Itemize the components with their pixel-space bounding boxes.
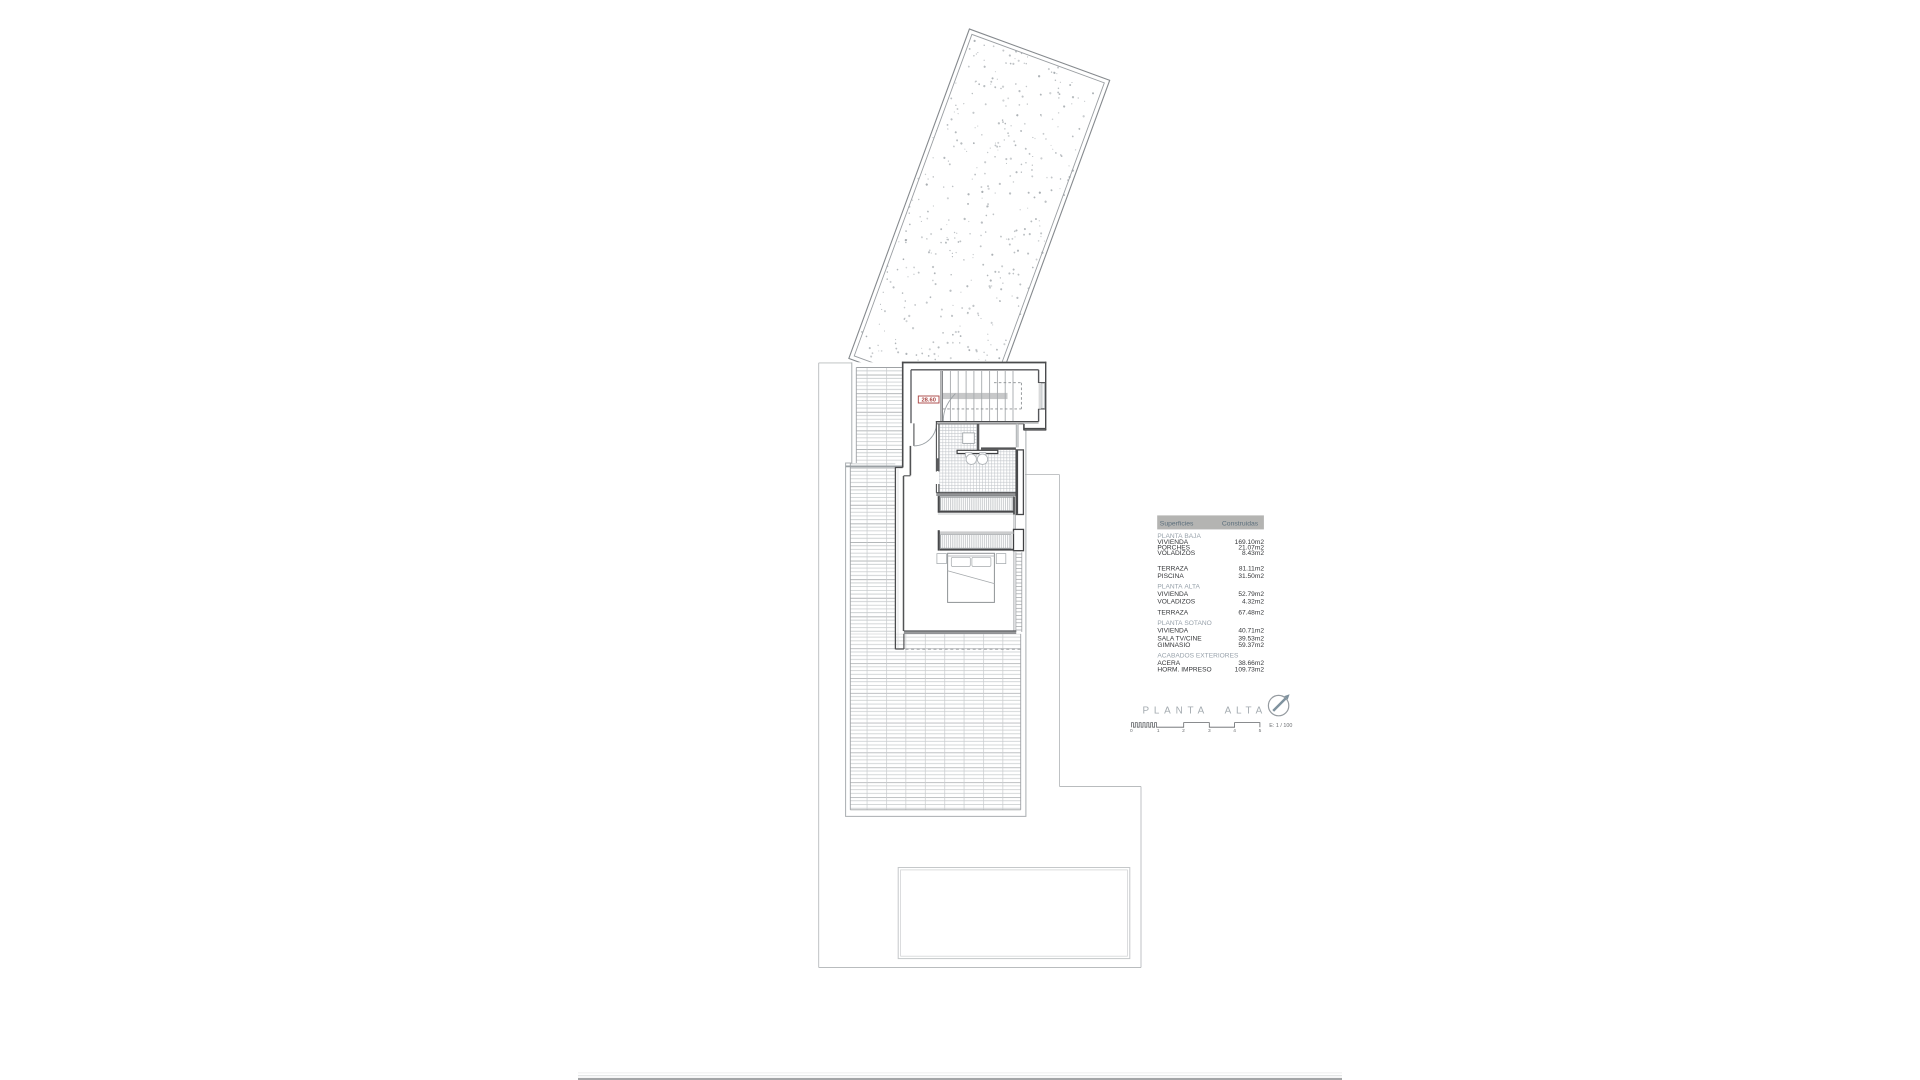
svg-text:5: 5 xyxy=(1259,728,1262,734)
svg-text:8.43m2: 8.43m2 xyxy=(1242,550,1264,557)
svg-text:2: 2 xyxy=(1182,728,1185,734)
svg-text:PLANTA SOTANO: PLANTA SOTANO xyxy=(1157,620,1211,627)
svg-text:4: 4 xyxy=(1233,728,1236,734)
svg-text:GIMNASIO: GIMNASIO xyxy=(1157,642,1190,649)
svg-text:81.11m2: 81.11m2 xyxy=(1239,565,1265,572)
svg-text:ALTA: ALTA xyxy=(1225,705,1267,716)
svg-text:HORM. IMPRESO: HORM. IMPRESO xyxy=(1157,667,1211,674)
svg-text:4.32m2: 4.32m2 xyxy=(1242,599,1264,606)
svg-text:TERRAZA: TERRAZA xyxy=(1157,609,1188,616)
svg-text:40.71m2: 40.71m2 xyxy=(1238,628,1264,635)
svg-text:52.79m2: 52.79m2 xyxy=(1238,591,1264,598)
svg-text:109.73m2: 109.73m2 xyxy=(1235,667,1265,674)
svg-text:TERRAZA: TERRAZA xyxy=(1157,565,1188,572)
svg-text:0: 0 xyxy=(1130,728,1133,734)
svg-text:VIVIENDA: VIVIENDA xyxy=(1157,628,1188,635)
svg-text:59.37m2: 59.37m2 xyxy=(1238,642,1264,649)
svg-text:3: 3 xyxy=(1208,728,1211,734)
svg-text:VIVIENDA: VIVIENDA xyxy=(1157,591,1188,598)
svg-text:67.48m2: 67.48m2 xyxy=(1238,609,1264,616)
svg-text:Superficies: Superficies xyxy=(1160,521,1194,528)
svg-text:31.50m2: 31.50m2 xyxy=(1238,573,1264,580)
svg-text:1: 1 xyxy=(1157,728,1160,734)
svg-text:PLANTA ALTA: PLANTA ALTA xyxy=(1157,583,1200,590)
svg-text:PISCINA: PISCINA xyxy=(1157,573,1184,580)
svg-text:E: 1 / 100: E: 1 / 100 xyxy=(1269,723,1292,729)
svg-text:VOLADIZOS: VOLADIZOS xyxy=(1157,599,1195,606)
svg-text:28.60: 28.60 xyxy=(921,398,936,404)
svg-text:Construidas: Construidas xyxy=(1222,521,1259,528)
svg-text:VOLADIZOS: VOLADIZOS xyxy=(1157,550,1195,557)
svg-text:ACABADOS EXTERIORES: ACABADOS EXTERIORES xyxy=(1157,653,1239,660)
svg-text:PLANTA: PLANTA xyxy=(1143,705,1209,716)
